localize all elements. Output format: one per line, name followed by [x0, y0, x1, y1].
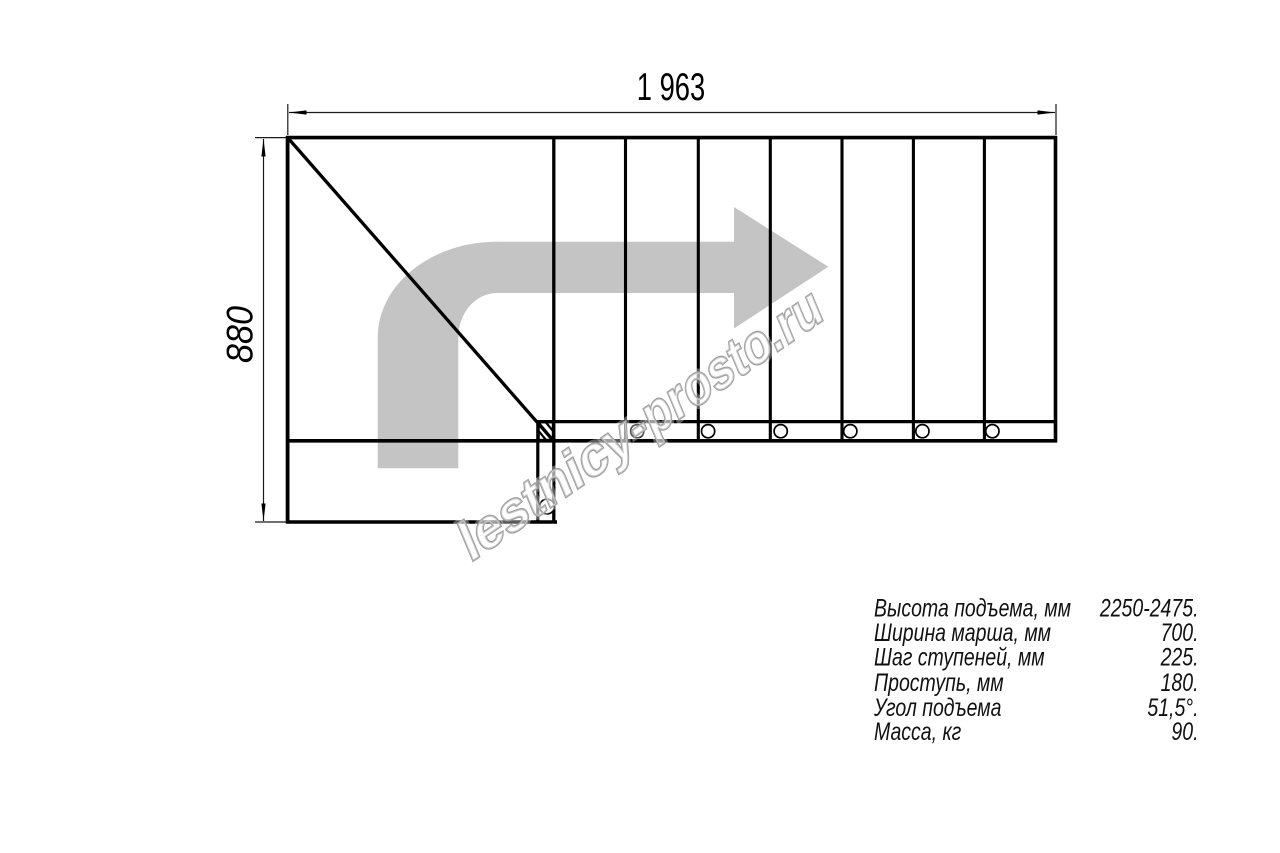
svg-text:Шаг ступеней, мм: Шаг ступеней, мм — [874, 643, 1045, 671]
svg-text:880: 880 — [220, 306, 261, 363]
svg-text:Проступь, мм: Проступь, мм — [874, 669, 1004, 697]
svg-text:180.: 180. — [1161, 669, 1199, 697]
svg-text:225.: 225. — [1160, 643, 1199, 671]
svg-text:1 963: 1 963 — [637, 66, 705, 109]
svg-text:Масса, кг: Масса, кг — [874, 718, 961, 746]
svg-text:90.: 90. — [1171, 718, 1198, 746]
